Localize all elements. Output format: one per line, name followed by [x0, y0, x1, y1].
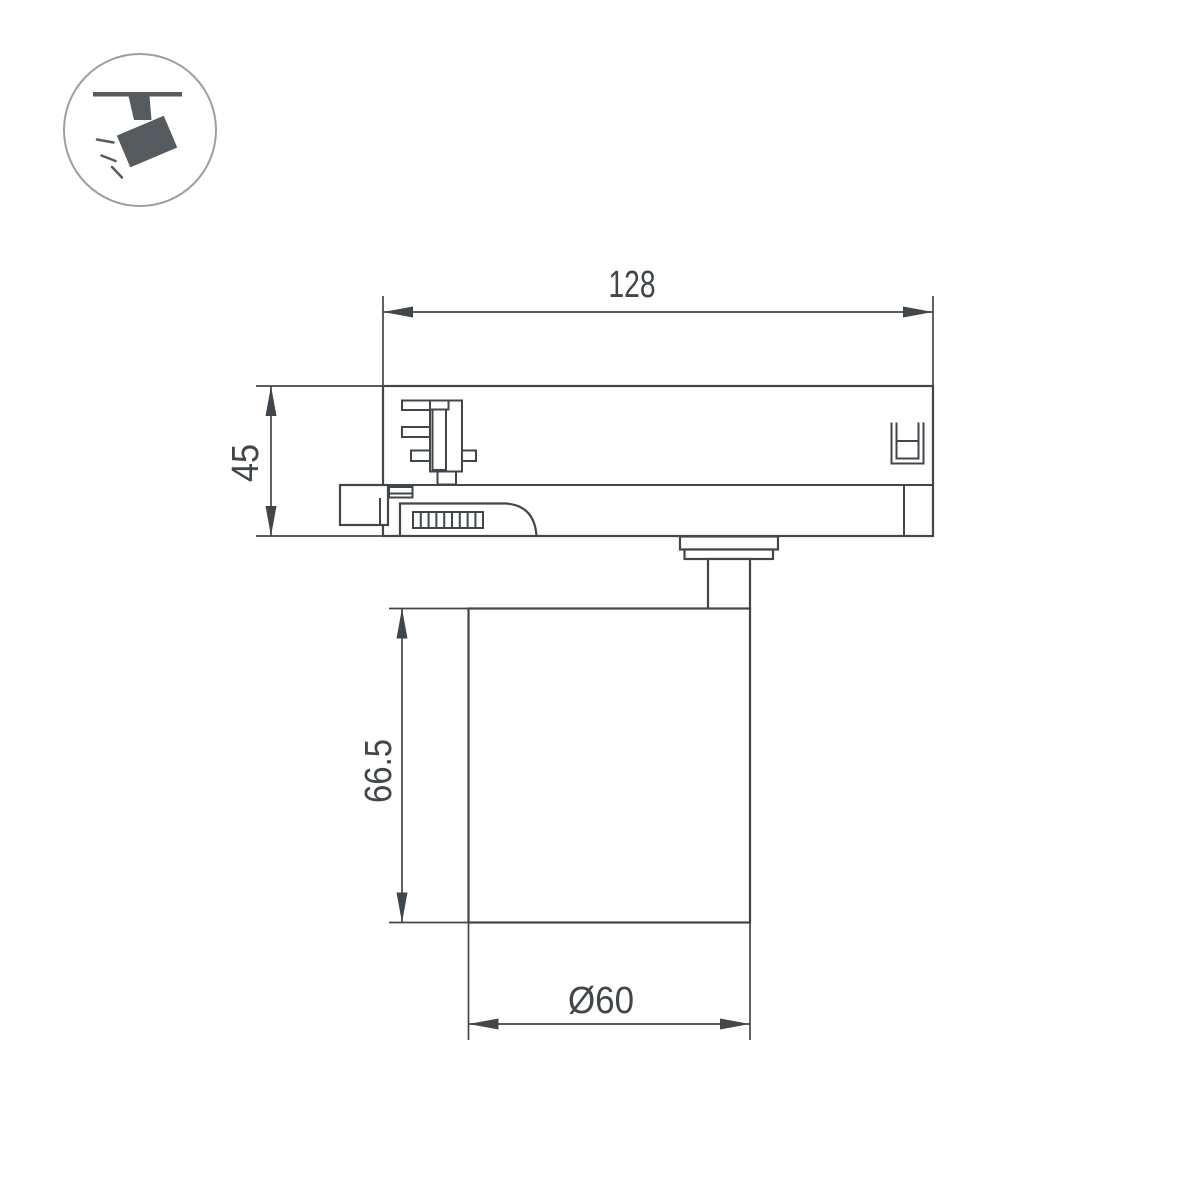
adapter-latch-notch [389, 487, 413, 498]
dimension-body-height: 66.5 [358, 609, 468, 923]
dimension-adapter-width: 128 [383, 264, 933, 386]
stem-column [708, 559, 750, 609]
connector-post [433, 410, 447, 471]
arrowhead-left [383, 307, 413, 318]
lamp-body-view [469, 609, 751, 923]
pivot-stem [680, 537, 778, 610]
arrowhead-left [469, 1019, 499, 1030]
arrowhead-down [397, 893, 408, 923]
drawing-sheet: 128 45 66.5 [0, 0, 1200, 1200]
stem-flange-upper [680, 537, 778, 550]
track-adapter-view [340, 386, 933, 536]
connector-tab-right [462, 451, 476, 462]
connector-contact-3 [411, 451, 430, 462]
arrowhead-up [266, 386, 277, 416]
stem-flange-lower [685, 550, 774, 560]
dimension-label-adapter-width: 128 [609, 264, 656, 306]
dimension-label-adapter-height: 45 [225, 444, 267, 482]
icon-track-bar [93, 92, 182, 97]
dimension-body-diameter: Ø60 [469, 923, 751, 1041]
connector-contact-1 [402, 401, 430, 411]
arrowhead-right [903, 307, 933, 318]
product-icon [64, 54, 216, 206]
arrowhead-right [720, 1019, 750, 1030]
arrowhead-up [397, 609, 408, 639]
connector-contact-2 [402, 427, 430, 437]
connector-foot [438, 472, 457, 485]
dimension-label-body-height: 66.5 [358, 739, 400, 803]
dimension-label-body-diameter: Ø60 [568, 980, 634, 1022]
drawing: 128 45 66.5 [225, 264, 933, 1040]
technical-drawing-canvas: 128 45 66.5 [0, 0, 1200, 1200]
arrowhead-down [266, 506, 277, 536]
